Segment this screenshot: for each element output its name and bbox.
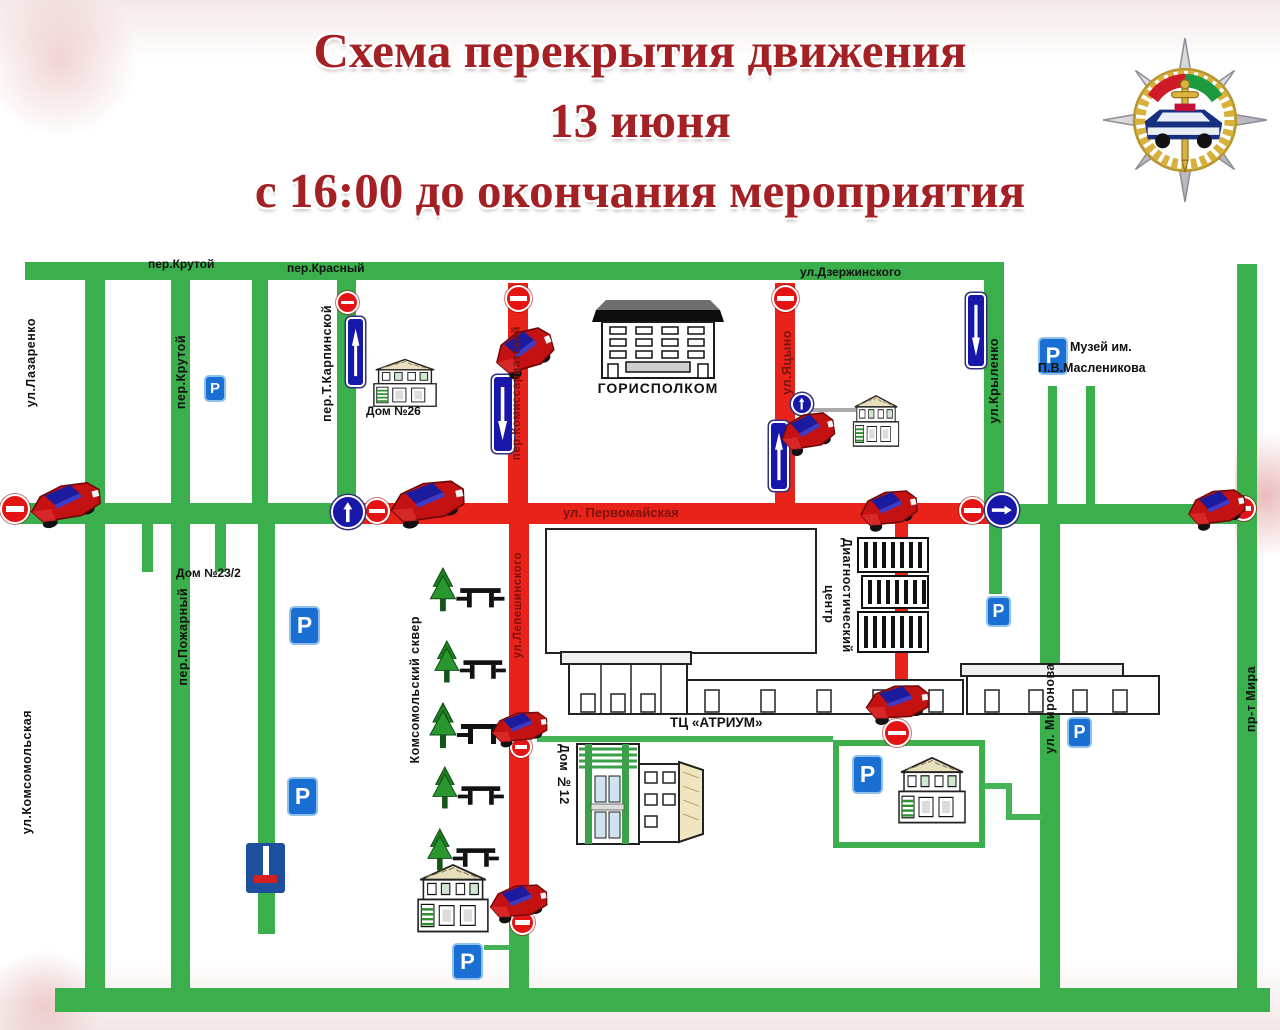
title-time: с 16:00 до окончания мероприятия <box>0 162 1280 219</box>
parking-lot-house <box>897 753 967 825</box>
street-label-krutoy-vertical: пер.Крутой <box>174 335 188 409</box>
title-date: 13 июня <box>0 92 1280 149</box>
turn-right-sign <box>985 493 1019 527</box>
parking-sign: P <box>289 606 320 645</box>
park-label-komsomolsky-skver: Комсомольский сквер <box>408 616 422 764</box>
street-label-komissariatsky: пер.Комиссариатский <box>511 326 523 460</box>
street-label-dzerzhinskogo: ул.Дзержинского <box>800 265 901 279</box>
street-stub-b <box>215 524 226 572</box>
street-label-mironova: ул. Миронова <box>1043 663 1057 754</box>
street-label-lazarenko: ул.Лазаренко <box>24 318 38 407</box>
diagnostic-center-building <box>856 536 932 656</box>
parking-connector-bottom <box>484 945 511 950</box>
dom26-house <box>372 356 438 408</box>
street-label-lepeshinskogo: ул.Лепешинского <box>512 552 524 658</box>
street-mira <box>1237 264 1257 994</box>
straight-ahead-sign <box>331 495 365 529</box>
no-entry-sign <box>505 285 532 312</box>
police-car-icon <box>854 478 924 536</box>
parking-sign: P <box>452 943 483 980</box>
street-label-krylenko: ул.Крыленко <box>987 338 1001 424</box>
police-car-icon <box>861 673 935 728</box>
no-entry-sign <box>336 291 359 314</box>
street-stub-upper <box>252 280 268 520</box>
street-label-mira: пр-т Мира <box>1244 666 1258 732</box>
dead-end-sign <box>246 843 285 893</box>
label-gorispolkom: ГОРИСПОЛКОМ <box>592 380 724 396</box>
street-lazarenko-komsomolskaya <box>85 262 105 1012</box>
parking-sign: P <box>986 596 1011 627</box>
label-museum-line1: Музей им. <box>1070 340 1132 354</box>
street-label-krutoy-top: пер.Крутой <box>148 257 214 271</box>
atrium-main-hall <box>545 528 817 654</box>
street-label-komsomolskaya: ул.Комсомольская <box>20 710 34 834</box>
street-label-krasny: пер.Красный <box>287 261 364 275</box>
street-t-karpinskoy <box>337 280 356 520</box>
no-entry-sign <box>772 285 799 312</box>
parking-connector-h2 <box>1006 814 1042 820</box>
parking-sign: P <box>852 755 883 794</box>
parking-sign: P <box>204 375 226 402</box>
parking-sign: P <box>287 777 318 816</box>
label-atrium: ТЦ «АТРИУМ» <box>670 715 763 730</box>
one-way-up-sign <box>346 317 365 387</box>
road-closure-poster: Схема перекрытия движения 13 июня с 16:0… <box>0 0 1280 1030</box>
street-label-pozharny: пер.Пожарный <box>176 588 190 686</box>
atrium-storefront <box>553 650 1165 718</box>
dom12-buildings <box>575 742 705 846</box>
street-stub-krylenko-south <box>989 524 1002 594</box>
street-mironova <box>1040 524 1060 994</box>
label-dom23: Дом №23/2 <box>176 566 241 580</box>
police-car-icon <box>485 873 554 927</box>
page-title: Схема перекрытия движения <box>0 22 1280 79</box>
street-label-pervomayskaya: ул. Первомайская <box>563 505 679 520</box>
yatsyno-house <box>852 392 900 448</box>
museum-driveway-1 <box>1048 386 1057 504</box>
street-bottom-horizontal <box>55 988 1270 1012</box>
park-tree-icon <box>423 828 501 876</box>
label-dom26: Дом №26 <box>366 404 421 418</box>
label-museum-line2: П.В.Масленикова <box>1038 361 1146 375</box>
park-tree-icon <box>430 640 508 688</box>
park-tree-icon <box>428 766 506 814</box>
park-tree-icon <box>426 567 506 617</box>
street-label-yatsyno: ул.Яцыно <box>780 330 794 395</box>
label-dom12: Дом №12 <box>557 744 571 805</box>
museum-driveway-2 <box>1086 386 1095 504</box>
parking-sign: P <box>1067 717 1092 748</box>
label-diagnostic-center-2: центр <box>822 585 836 623</box>
no-entry-sign <box>959 497 986 524</box>
label-diagnostic-center-1: Диагностический <box>840 538 854 653</box>
street-label-t-karpinskoy: пер.Т.Карпинской <box>320 305 334 422</box>
one-way-down-sign <box>966 293 986 368</box>
street-stub-a <box>142 524 153 572</box>
gorispolkom-building <box>592 296 724 380</box>
no-entry-sign <box>364 498 390 524</box>
